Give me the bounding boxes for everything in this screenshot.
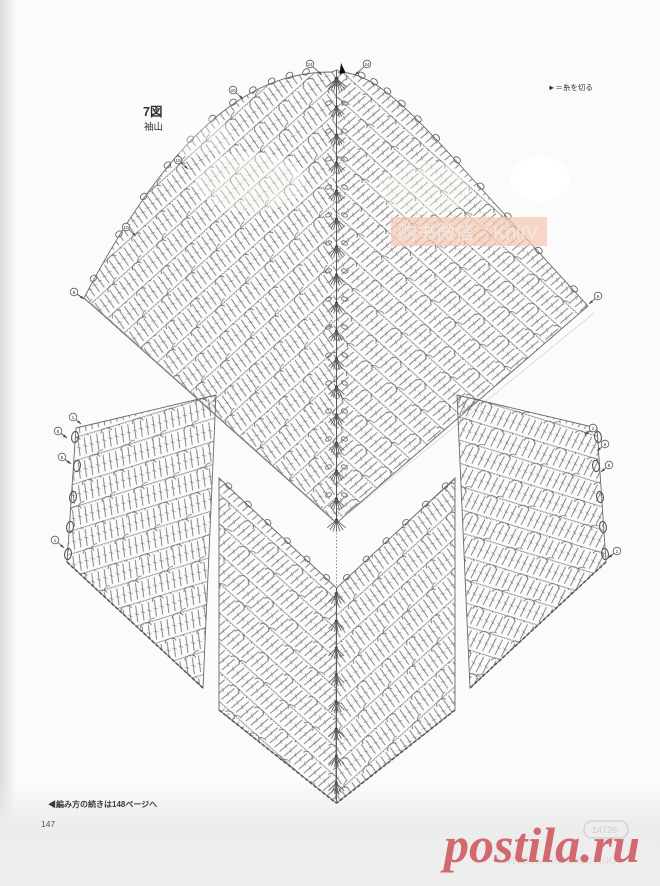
svg-text:7図: 7図 bbox=[143, 105, 162, 119]
svg-text:1: 1 bbox=[54, 538, 57, 544]
svg-text:1: 1 bbox=[592, 426, 595, 432]
svg-text:购书微信／KnitV: 购书微信／KnitV bbox=[398, 222, 539, 244]
svg-text:postila.ru: postila.ru bbox=[440, 817, 640, 873]
svg-text:袖山: 袖山 bbox=[144, 121, 163, 133]
svg-text:5: 5 bbox=[61, 455, 64, 461]
svg-text:►＝糸を切る: ►＝糸を切る bbox=[548, 82, 593, 92]
svg-text:8: 8 bbox=[73, 290, 76, 296]
svg-text:15: 15 bbox=[175, 158, 181, 164]
svg-text:6: 6 bbox=[604, 442, 607, 448]
svg-text:10: 10 bbox=[123, 225, 129, 231]
svg-text:6: 6 bbox=[57, 429, 60, 435]
svg-text:8: 8 bbox=[597, 294, 600, 300]
svg-text:147: 147 bbox=[41, 819, 55, 829]
svg-text:1: 1 bbox=[616, 549, 619, 555]
svg-text:5: 5 bbox=[608, 463, 611, 469]
svg-text:1: 1 bbox=[72, 415, 75, 421]
svg-text:24: 24 bbox=[364, 62, 370, 68]
svg-text:24: 24 bbox=[307, 62, 313, 68]
svg-text:20: 20 bbox=[230, 88, 236, 94]
svg-text:◀編み方の続きは148ページへ: ◀編み方の続きは148ページへ bbox=[48, 799, 157, 809]
